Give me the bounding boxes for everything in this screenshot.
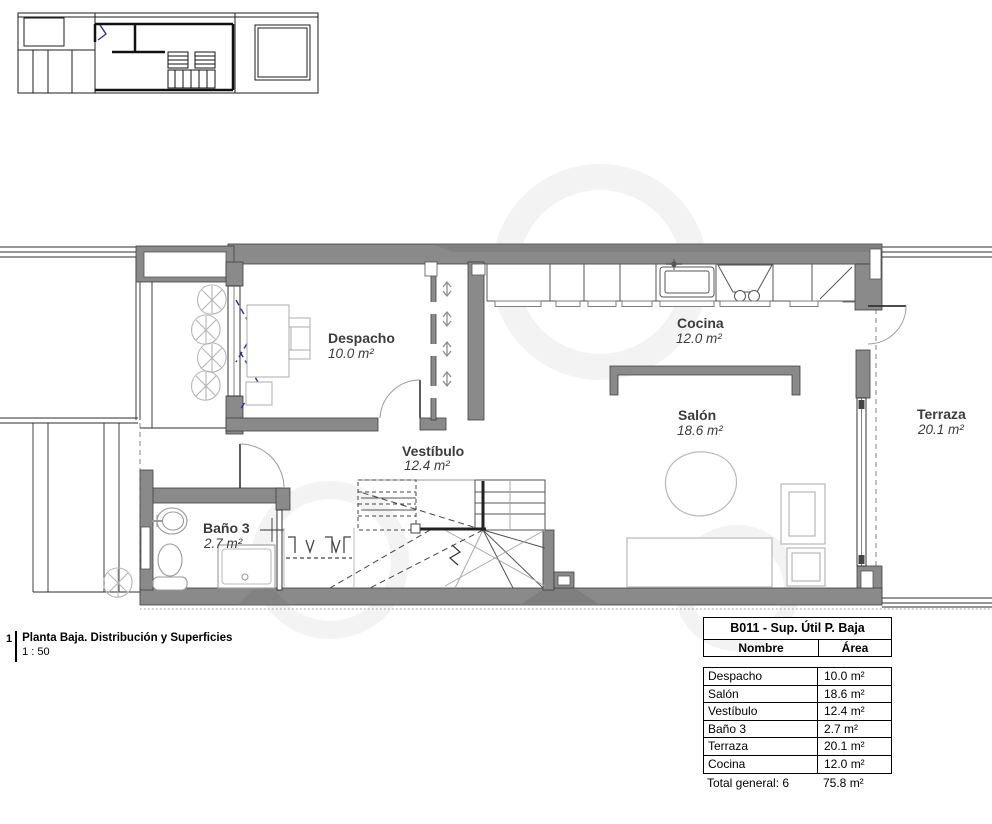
table-row: Vestíbulo 12.4 m²	[704, 703, 891, 721]
table-total-row: Total general: 6 75.8 m²	[703, 774, 892, 792]
room-label-vestibulo: Vestíbulo	[402, 443, 464, 459]
overview-plan	[18, 13, 318, 93]
table-body: Despacho 10.0 m² Salón 18.6 m² Vestíbulo…	[703, 667, 892, 774]
shower-tray	[218, 545, 275, 588]
room-area-salon: 18.6 m²	[677, 423, 723, 438]
room-label-bano3: Baño 3	[203, 520, 250, 536]
under-counter-units	[495, 301, 818, 307]
room-label-terraza: Terraza	[917, 406, 966, 422]
room-area-terraza: 20.1 m²	[917, 422, 964, 437]
table-gap	[703, 657, 892, 667]
view-scale: 1 : 50	[22, 645, 232, 659]
view-number: 1	[6, 631, 15, 645]
view-title-block: 1 Planta Baja. Distribución y Superficie…	[6, 631, 232, 662]
table-row: Despacho 10.0 m²	[704, 668, 891, 686]
toilet	[153, 544, 187, 590]
room-area-cocina: 12.0 m²	[676, 331, 722, 346]
room-area-despacho: 10.0 m²	[328, 346, 374, 361]
sofa	[627, 538, 772, 587]
salon-furniture	[627, 452, 825, 587]
table-row: Baño 3 2.7 m²	[704, 721, 891, 739]
closet	[284, 528, 354, 588]
column-header-nombre: Nombre	[704, 640, 819, 656]
kitchen-counter	[487, 259, 855, 307]
table-row: Cocina 12.0 m²	[704, 756, 891, 773]
table-header: Nombre Área	[703, 640, 892, 657]
side-table	[787, 548, 825, 586]
rug	[665, 452, 736, 516]
room-label-despacho: Despacho	[328, 330, 395, 346]
table-row: Salón 18.6 m²	[704, 686, 891, 704]
view-title-divider	[15, 631, 17, 662]
table-title: B011 - Sup. Útil P. Baja	[703, 617, 892, 640]
view-title: Planta Baja. Distribución y Superficies	[22, 631, 232, 645]
room-label-salon: Salón	[678, 407, 716, 423]
area-schedule-table: B011 - Sup. Útil P. Baja Nombre Área Des…	[703, 617, 892, 792]
shaft-arrows	[443, 282, 451, 386]
washbasin	[152, 508, 187, 534]
despacho-desk	[246, 305, 310, 405]
armchair	[781, 484, 825, 544]
table-row: Terraza 20.1 m²	[704, 738, 891, 756]
room-area-vestibulo: 12.4 m²	[404, 458, 450, 473]
room-label-cocina: Cocina	[677, 315, 724, 331]
room-labels: Despacho 10.0 m² Cocina 12.0 m² Salón 18…	[203, 315, 966, 551]
column-header-area: Área	[819, 640, 891, 656]
room-area-bano3: 2.7 m²	[203, 536, 243, 551]
